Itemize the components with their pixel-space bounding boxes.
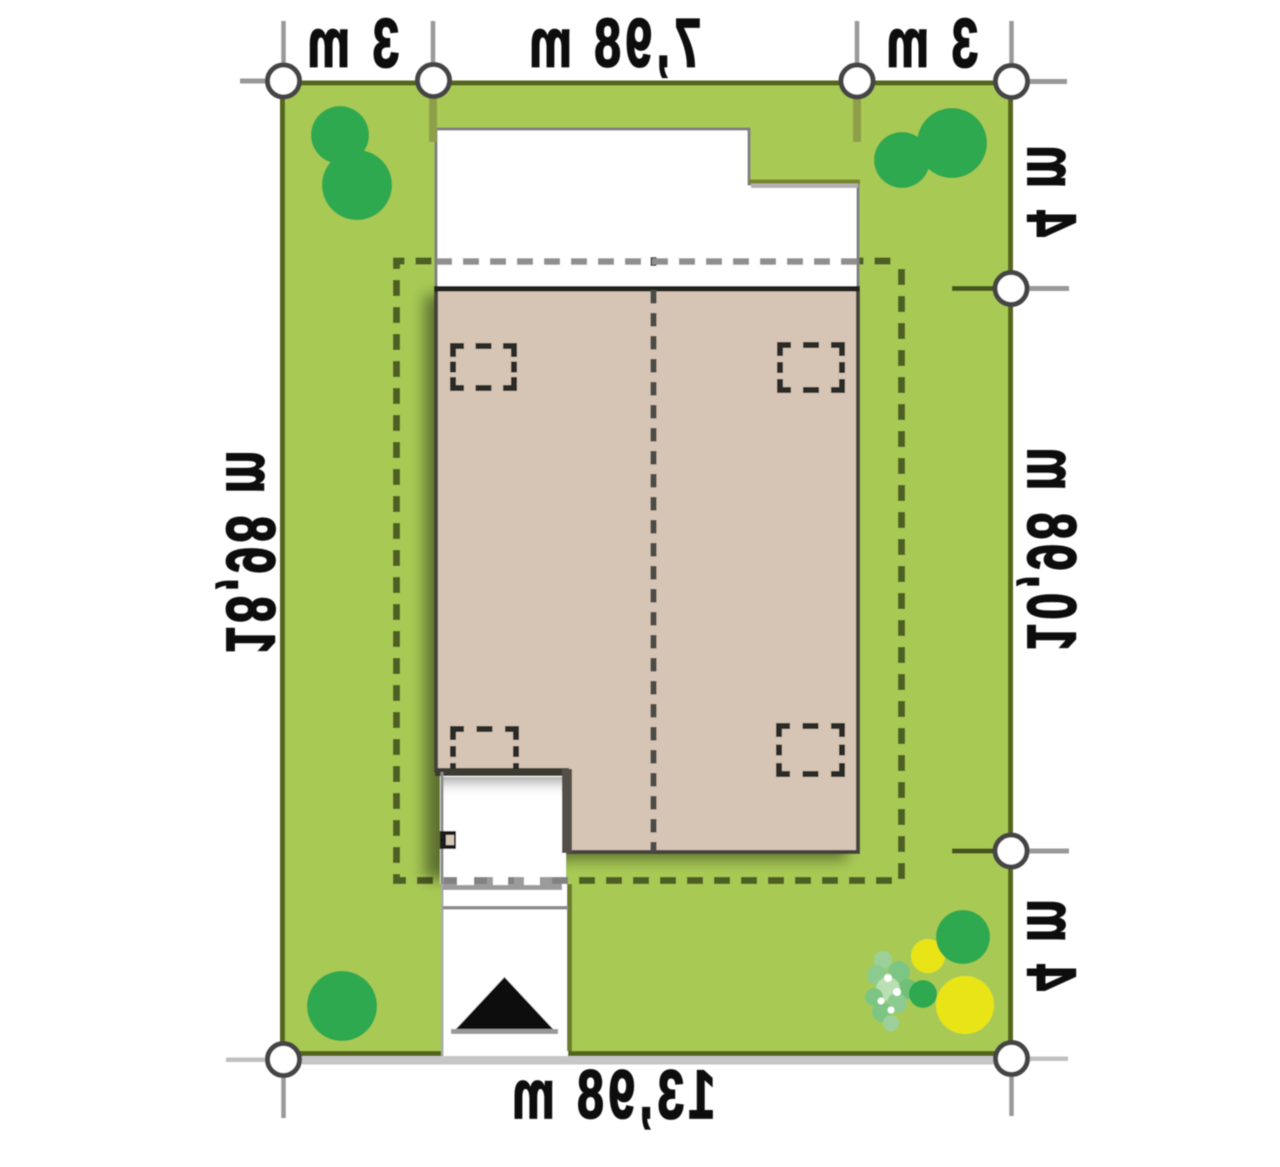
svg-text:3 m: 3 m [303, 4, 399, 82]
svg-text:18,98 m: 18,98 m [212, 446, 290, 654]
svg-text:4 m: 4 m [1013, 895, 1091, 991]
svg-text:7,98 m: 7,98 m [525, 4, 701, 82]
svg-text:4 m: 4 m [1013, 141, 1091, 237]
svg-text:3 m: 3 m [882, 4, 978, 82]
svg-text:13,98 m: 13,98 m [508, 1055, 716, 1133]
svg-text:10,98 m: 10,98 m [1013, 443, 1091, 651]
